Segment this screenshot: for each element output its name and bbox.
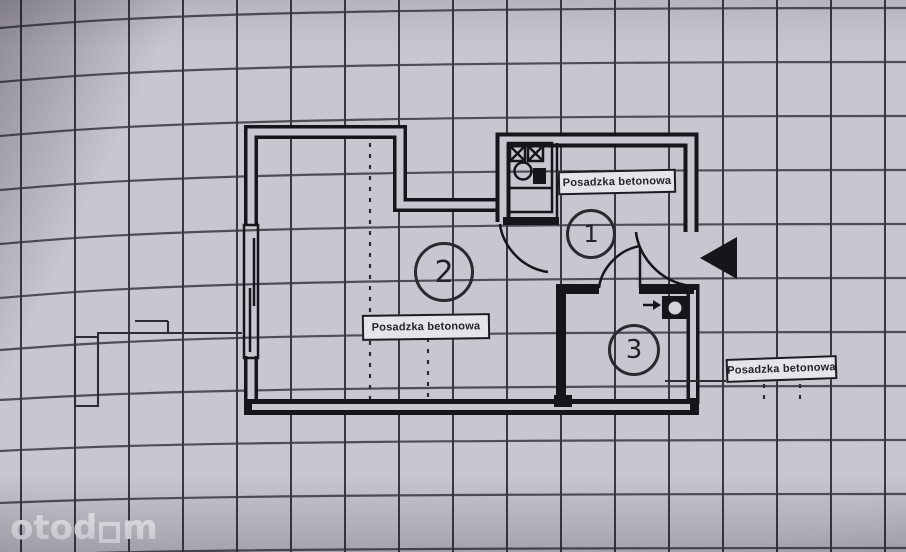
- bathroom-fixture: [643, 296, 687, 319]
- room-3-number: 3: [626, 335, 643, 365]
- entrance-arrow-icon: [700, 237, 737, 279]
- room-3-marker: 3: [608, 324, 660, 376]
- room-1-number: 1: [583, 220, 598, 248]
- watermark-text-prefix: otod: [10, 510, 97, 546]
- room-2-floor-label: Posadzka betonowa: [362, 313, 490, 341]
- floorplan-photo: Posadzka betonowa Posadzka betonowa Posa…: [0, 0, 906, 552]
- otodom-logo-square-icon: [99, 522, 120, 543]
- room-2-marker: 2: [414, 242, 474, 302]
- otodom-watermark: otod m: [10, 510, 158, 546]
- room-1-floor-label: Posadzka betonowa: [558, 169, 676, 195]
- kitchen-sink-stove-fixture: [508, 143, 557, 220]
- room-2-number: 2: [434, 255, 453, 290]
- watermark-text-suffix: m: [122, 510, 157, 546]
- room-1-marker: 1: [566, 209, 616, 259]
- room-3-floor-label: Posadzka betonowa: [726, 355, 838, 383]
